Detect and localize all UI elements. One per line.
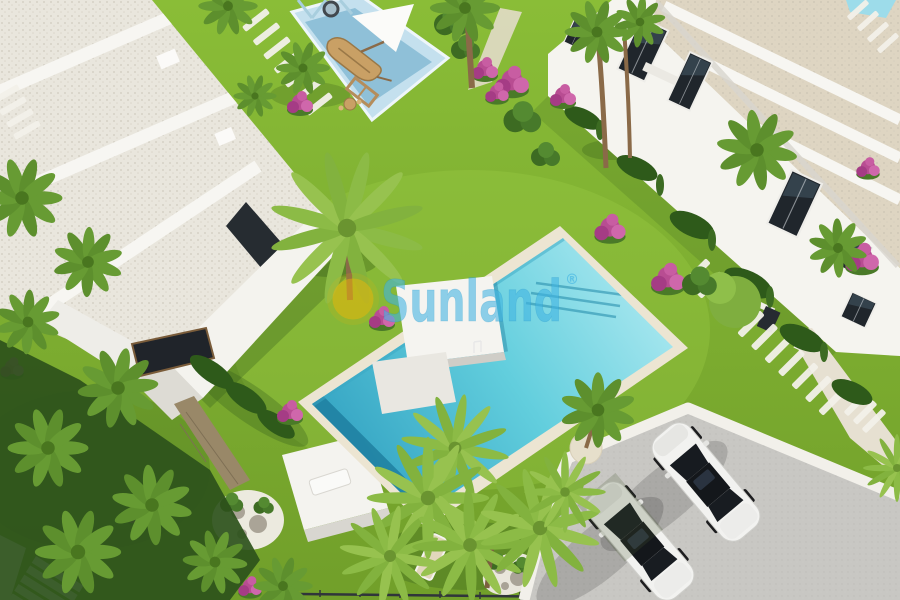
sun-icon (333, 279, 374, 320)
aerial-site-render: Sunland ® (0, 0, 900, 600)
watermark-brand-text: Sunland (381, 269, 562, 335)
site-plan-canvas: Sunland ® (0, 0, 900, 600)
registered-trademark-icon: ® (565, 272, 579, 288)
